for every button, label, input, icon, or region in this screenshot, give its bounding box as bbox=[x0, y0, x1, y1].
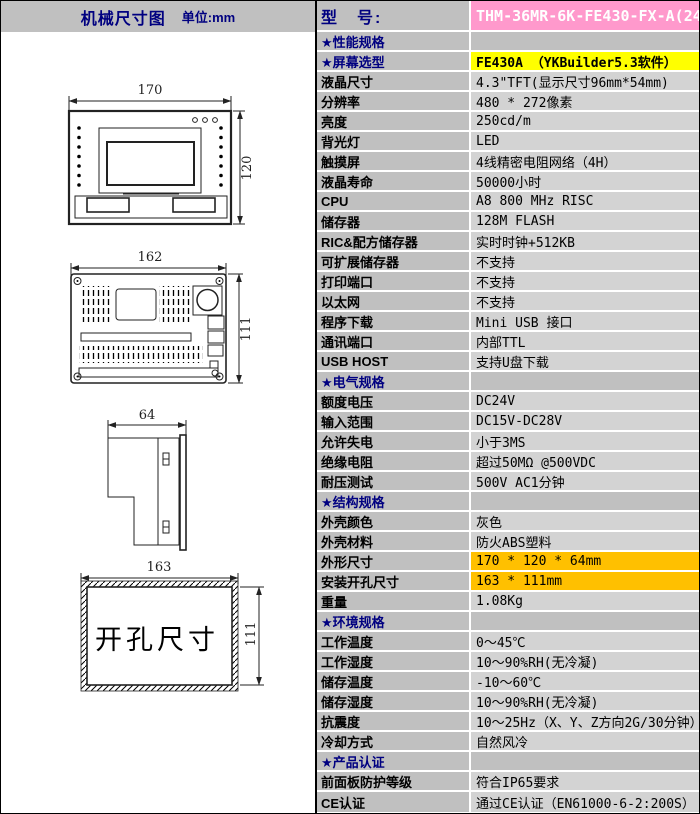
spec-row: ★屏幕选型 FE430A （YKBuilder5.3软件） bbox=[317, 52, 700, 72]
spec-row: 外壳颜色 灰色 bbox=[317, 512, 700, 532]
cutout-label: 开孔尺寸 bbox=[95, 625, 219, 656]
spec-row: 储存器 128M FLASH bbox=[317, 212, 700, 232]
spec-row: 可扩展储存器 不支持 bbox=[317, 252, 700, 272]
spec-row: 绝缘电阻 超过50MΩ @500VDC bbox=[317, 452, 700, 472]
spec-row: 冷却方式 自然风冷 bbox=[317, 732, 700, 752]
spec-label: 绝缘电阻 bbox=[317, 452, 471, 470]
spec-row: 前面板防护等级 符合IP65要求 bbox=[317, 772, 700, 792]
spec-label: 外壳颜色 bbox=[317, 512, 471, 530]
spec-value: 10～90%RH(无冷凝) bbox=[471, 652, 700, 670]
spec-label: 工作湿度 bbox=[317, 652, 471, 670]
spec-value: LED bbox=[471, 132, 700, 150]
spec-row: 工作温度 0～45℃ bbox=[317, 632, 700, 652]
spec-label: USB HOST bbox=[317, 352, 471, 370]
spec-label: 液晶寿命 bbox=[317, 172, 471, 190]
connector-block bbox=[208, 331, 224, 343]
spec-table: 型 号: THM-36MR-6K-FE430-FX-A(24V) ★性能规格 ★… bbox=[317, 1, 700, 813]
spec-value: DC24V bbox=[471, 392, 700, 410]
spec-label: 打印端口 bbox=[317, 272, 471, 290]
spec-value: 4.3"TFT(显示尺寸96mm*54mm) bbox=[471, 72, 700, 90]
spec-label: ★环境规格 bbox=[317, 612, 471, 630]
spec-value: 0～45℃ bbox=[471, 632, 700, 650]
dimension-label: 170 bbox=[138, 83, 163, 98]
spec-value bbox=[471, 612, 700, 630]
spec-value: 不支持 bbox=[471, 252, 700, 270]
spec-value: 符合IP65要求 bbox=[471, 772, 700, 790]
spec-value: -10～60℃ bbox=[471, 672, 700, 690]
spec-label: 背光灯 bbox=[317, 132, 471, 150]
dimension-label: 162 bbox=[138, 250, 163, 265]
spec-row: 重量 1.08Kg bbox=[317, 592, 700, 612]
spec-row: CE认证 通过CE认证（EN61000-6-2:200S） bbox=[317, 792, 700, 812]
spec-row: USB HOST 支持U盘下载 bbox=[317, 352, 700, 372]
spec-label: CPU bbox=[317, 192, 471, 210]
spec-value: 自然风冷 bbox=[471, 732, 700, 750]
spec-label: 冷却方式 bbox=[317, 732, 471, 750]
spec-label: 重量 bbox=[317, 592, 471, 610]
spec-value: 10～90%RH(无冷凝) bbox=[471, 692, 700, 710]
spec-row: RIC&配方储存器 实时时钟+512KB bbox=[317, 232, 700, 252]
dimension-label: 120 bbox=[240, 156, 255, 181]
vent-grille bbox=[159, 286, 191, 322]
spec-value: 不支持 bbox=[471, 272, 700, 290]
mechanical-panel: 机械尺寸图 单位:mm 170 bbox=[1, 1, 317, 813]
spec-label: 通讯端口 bbox=[317, 332, 471, 350]
spec-label: CE认证 bbox=[317, 792, 471, 812]
spec-label: 安装开孔尺寸 bbox=[317, 572, 471, 590]
spec-value: Mini USB 接口 bbox=[471, 312, 700, 330]
spec-label: 允许失电 bbox=[317, 432, 471, 450]
spec-row: 通讯端口 内部TTL bbox=[317, 332, 700, 352]
spec-row: 输入范围 DC15V-DC28V bbox=[317, 412, 700, 432]
spec-value: 10～25Hz（X、Y、Z方向2G/30分钟） bbox=[471, 712, 700, 730]
spec-label: 储存器 bbox=[317, 212, 471, 230]
spec-label: 触摸屏 bbox=[317, 152, 471, 170]
spec-row: 储存温度 -10～60℃ bbox=[317, 672, 700, 692]
spec-row: ★电气规格 bbox=[317, 372, 700, 392]
spec-label: 分辨率 bbox=[317, 92, 471, 110]
spec-row: 液晶寿命 50000小时 bbox=[317, 172, 700, 192]
dimension-label: 64 bbox=[139, 408, 156, 423]
spec-row: 耐压测试 500V AC1分钟 bbox=[317, 472, 700, 492]
spec-row: 背光灯 LED bbox=[317, 132, 700, 152]
dimension-label: 163 bbox=[147, 560, 172, 575]
spec-value bbox=[471, 752, 700, 770]
spec-value: 超过50MΩ @500VDC bbox=[471, 452, 700, 470]
spec-label: 输入范围 bbox=[317, 412, 471, 430]
spec-value: 支持U盘下载 bbox=[471, 352, 700, 370]
spec-value: 4线精密电阻网络（4H） bbox=[471, 152, 700, 170]
spec-row: 储存湿度 10～90%RH(无冷凝) bbox=[317, 692, 700, 712]
vent-grille bbox=[79, 346, 203, 363]
mechanical-drawings: 170 bbox=[1, 34, 315, 813]
dimension-label: 111 bbox=[244, 622, 259, 647]
spec-label: 工作温度 bbox=[317, 632, 471, 650]
spec-row: 抗震度 10～25Hz（X、Y、Z方向2G/30分钟） bbox=[317, 712, 700, 732]
spec-label: RIC&配方储存器 bbox=[317, 232, 471, 250]
model-label: 型 号: bbox=[317, 1, 471, 30]
side-profile bbox=[108, 438, 179, 545]
spec-value: 1.08Kg bbox=[471, 592, 700, 610]
spec-row: 程序下载 Mini USB 接口 bbox=[317, 312, 700, 332]
mechanical-header: 机械尺寸图 单位:mm bbox=[1, 1, 315, 34]
spec-row: ★产品认证 bbox=[317, 752, 700, 772]
spec-label: 程序下载 bbox=[317, 312, 471, 330]
spec-row: 外壳材料 防火ABS塑料 bbox=[317, 532, 700, 552]
spec-value: DC15V-DC28V bbox=[471, 412, 700, 430]
spec-row: 允许失电 小于3MS bbox=[317, 432, 700, 452]
spec-label: 亮度 bbox=[317, 112, 471, 130]
mechanical-title: 机械尺寸图 bbox=[81, 5, 166, 29]
spec-label: 液晶尺寸 bbox=[317, 72, 471, 90]
label-plate bbox=[116, 289, 156, 320]
spec-value: 灰色 bbox=[471, 512, 700, 530]
spec-label: 外壳材料 bbox=[317, 532, 471, 550]
spec-label: 储存湿度 bbox=[317, 692, 471, 710]
spec-row: 工作湿度 10～90%RH(无冷凝) bbox=[317, 652, 700, 672]
spec-row: 外形尺寸 170 * 120 * 64mm bbox=[317, 552, 700, 572]
spec-row: 触摸屏 4线精密电阻网络（4H） bbox=[317, 152, 700, 172]
spec-label: 以太网 bbox=[317, 292, 471, 310]
spec-label: ★电气规格 bbox=[317, 372, 471, 390]
battery-holder bbox=[193, 286, 222, 315]
spec-label: 外形尺寸 bbox=[317, 552, 471, 570]
mounting-clip bbox=[163, 453, 169, 533]
unit-label: 单位:mm bbox=[182, 7, 235, 26]
spec-value: 480 * 272像素 bbox=[471, 92, 700, 110]
spec-value: 防火ABS塑料 bbox=[471, 532, 700, 550]
spec-label: 可扩展储存器 bbox=[317, 252, 471, 270]
spec-row: ★性能规格 bbox=[317, 32, 700, 52]
model-row: 型 号: THM-36MR-6K-FE430-FX-A(24V) bbox=[317, 1, 700, 32]
spec-value: 163 * 111mm bbox=[471, 572, 700, 590]
spec-row: 液晶尺寸 4.3"TFT(显示尺寸96mm*54mm) bbox=[317, 72, 700, 92]
spec-value: 128M FLASH bbox=[471, 212, 700, 230]
spec-value bbox=[471, 492, 700, 510]
spec-value bbox=[471, 32, 700, 50]
spec-label: ★性能规格 bbox=[317, 32, 471, 50]
spec-label: 前面板防护等级 bbox=[317, 772, 471, 790]
spec-row: 亮度 250cd/m bbox=[317, 112, 700, 132]
spec-label: ★产品认证 bbox=[317, 752, 471, 770]
spec-value: 实时时钟+512KB bbox=[471, 232, 700, 250]
spec-row: 打印端口 不支持 bbox=[317, 272, 700, 292]
spec-label: ★屏幕选型 bbox=[317, 52, 471, 70]
spec-rows: ★性能规格 ★屏幕选型 FE430A （YKBuilder5.3软件） 液晶尺寸… bbox=[317, 32, 700, 812]
spec-value: 不支持 bbox=[471, 292, 700, 310]
spec-row: 额度电压 DC24V bbox=[317, 392, 700, 412]
spec-row: CPU A8 800 MHz RISC bbox=[317, 192, 700, 212]
model-value: THM-36MR-6K-FE430-FX-A(24V) bbox=[471, 1, 700, 30]
spec-row: 安装开孔尺寸 163 * 111mm bbox=[317, 572, 700, 592]
spec-value: 内部TTL bbox=[471, 332, 700, 350]
spec-label: 额度电压 bbox=[317, 392, 471, 410]
spec-label: 抗震度 bbox=[317, 712, 471, 730]
spec-value: 250cd/m bbox=[471, 112, 700, 130]
spec-value bbox=[471, 372, 700, 390]
spec-label: 储存温度 bbox=[317, 672, 471, 690]
spec-row: 分辨率 480 * 272像素 bbox=[317, 92, 700, 112]
spec-value: 50000小时 bbox=[471, 172, 700, 190]
spec-value: A8 800 MHz RISC bbox=[471, 192, 700, 210]
spec-row: 以太网 不支持 bbox=[317, 292, 700, 312]
vent-grille bbox=[81, 286, 111, 322]
connector-block bbox=[208, 316, 224, 329]
spec-value: 通过CE认证（EN61000-6-2:200S） bbox=[471, 792, 700, 812]
spec-value: 小于3MS bbox=[471, 432, 700, 450]
spec-row: ★结构规格 bbox=[317, 492, 700, 512]
spec-row: ★环境规格 bbox=[317, 612, 700, 632]
spec-value: 170 * 120 * 64mm bbox=[471, 552, 700, 570]
front-bezel-flange bbox=[180, 435, 186, 550]
spec-sheet: 机械尺寸图 单位:mm 170 bbox=[0, 0, 700, 814]
dimension-label: 111 bbox=[239, 317, 254, 342]
spec-label: 耐压测试 bbox=[317, 472, 471, 490]
spec-value: 500V AC1分钟 bbox=[471, 472, 700, 490]
spec-label: ★结构规格 bbox=[317, 492, 471, 510]
spec-value: FE430A （YKBuilder5.3软件） bbox=[471, 52, 700, 70]
